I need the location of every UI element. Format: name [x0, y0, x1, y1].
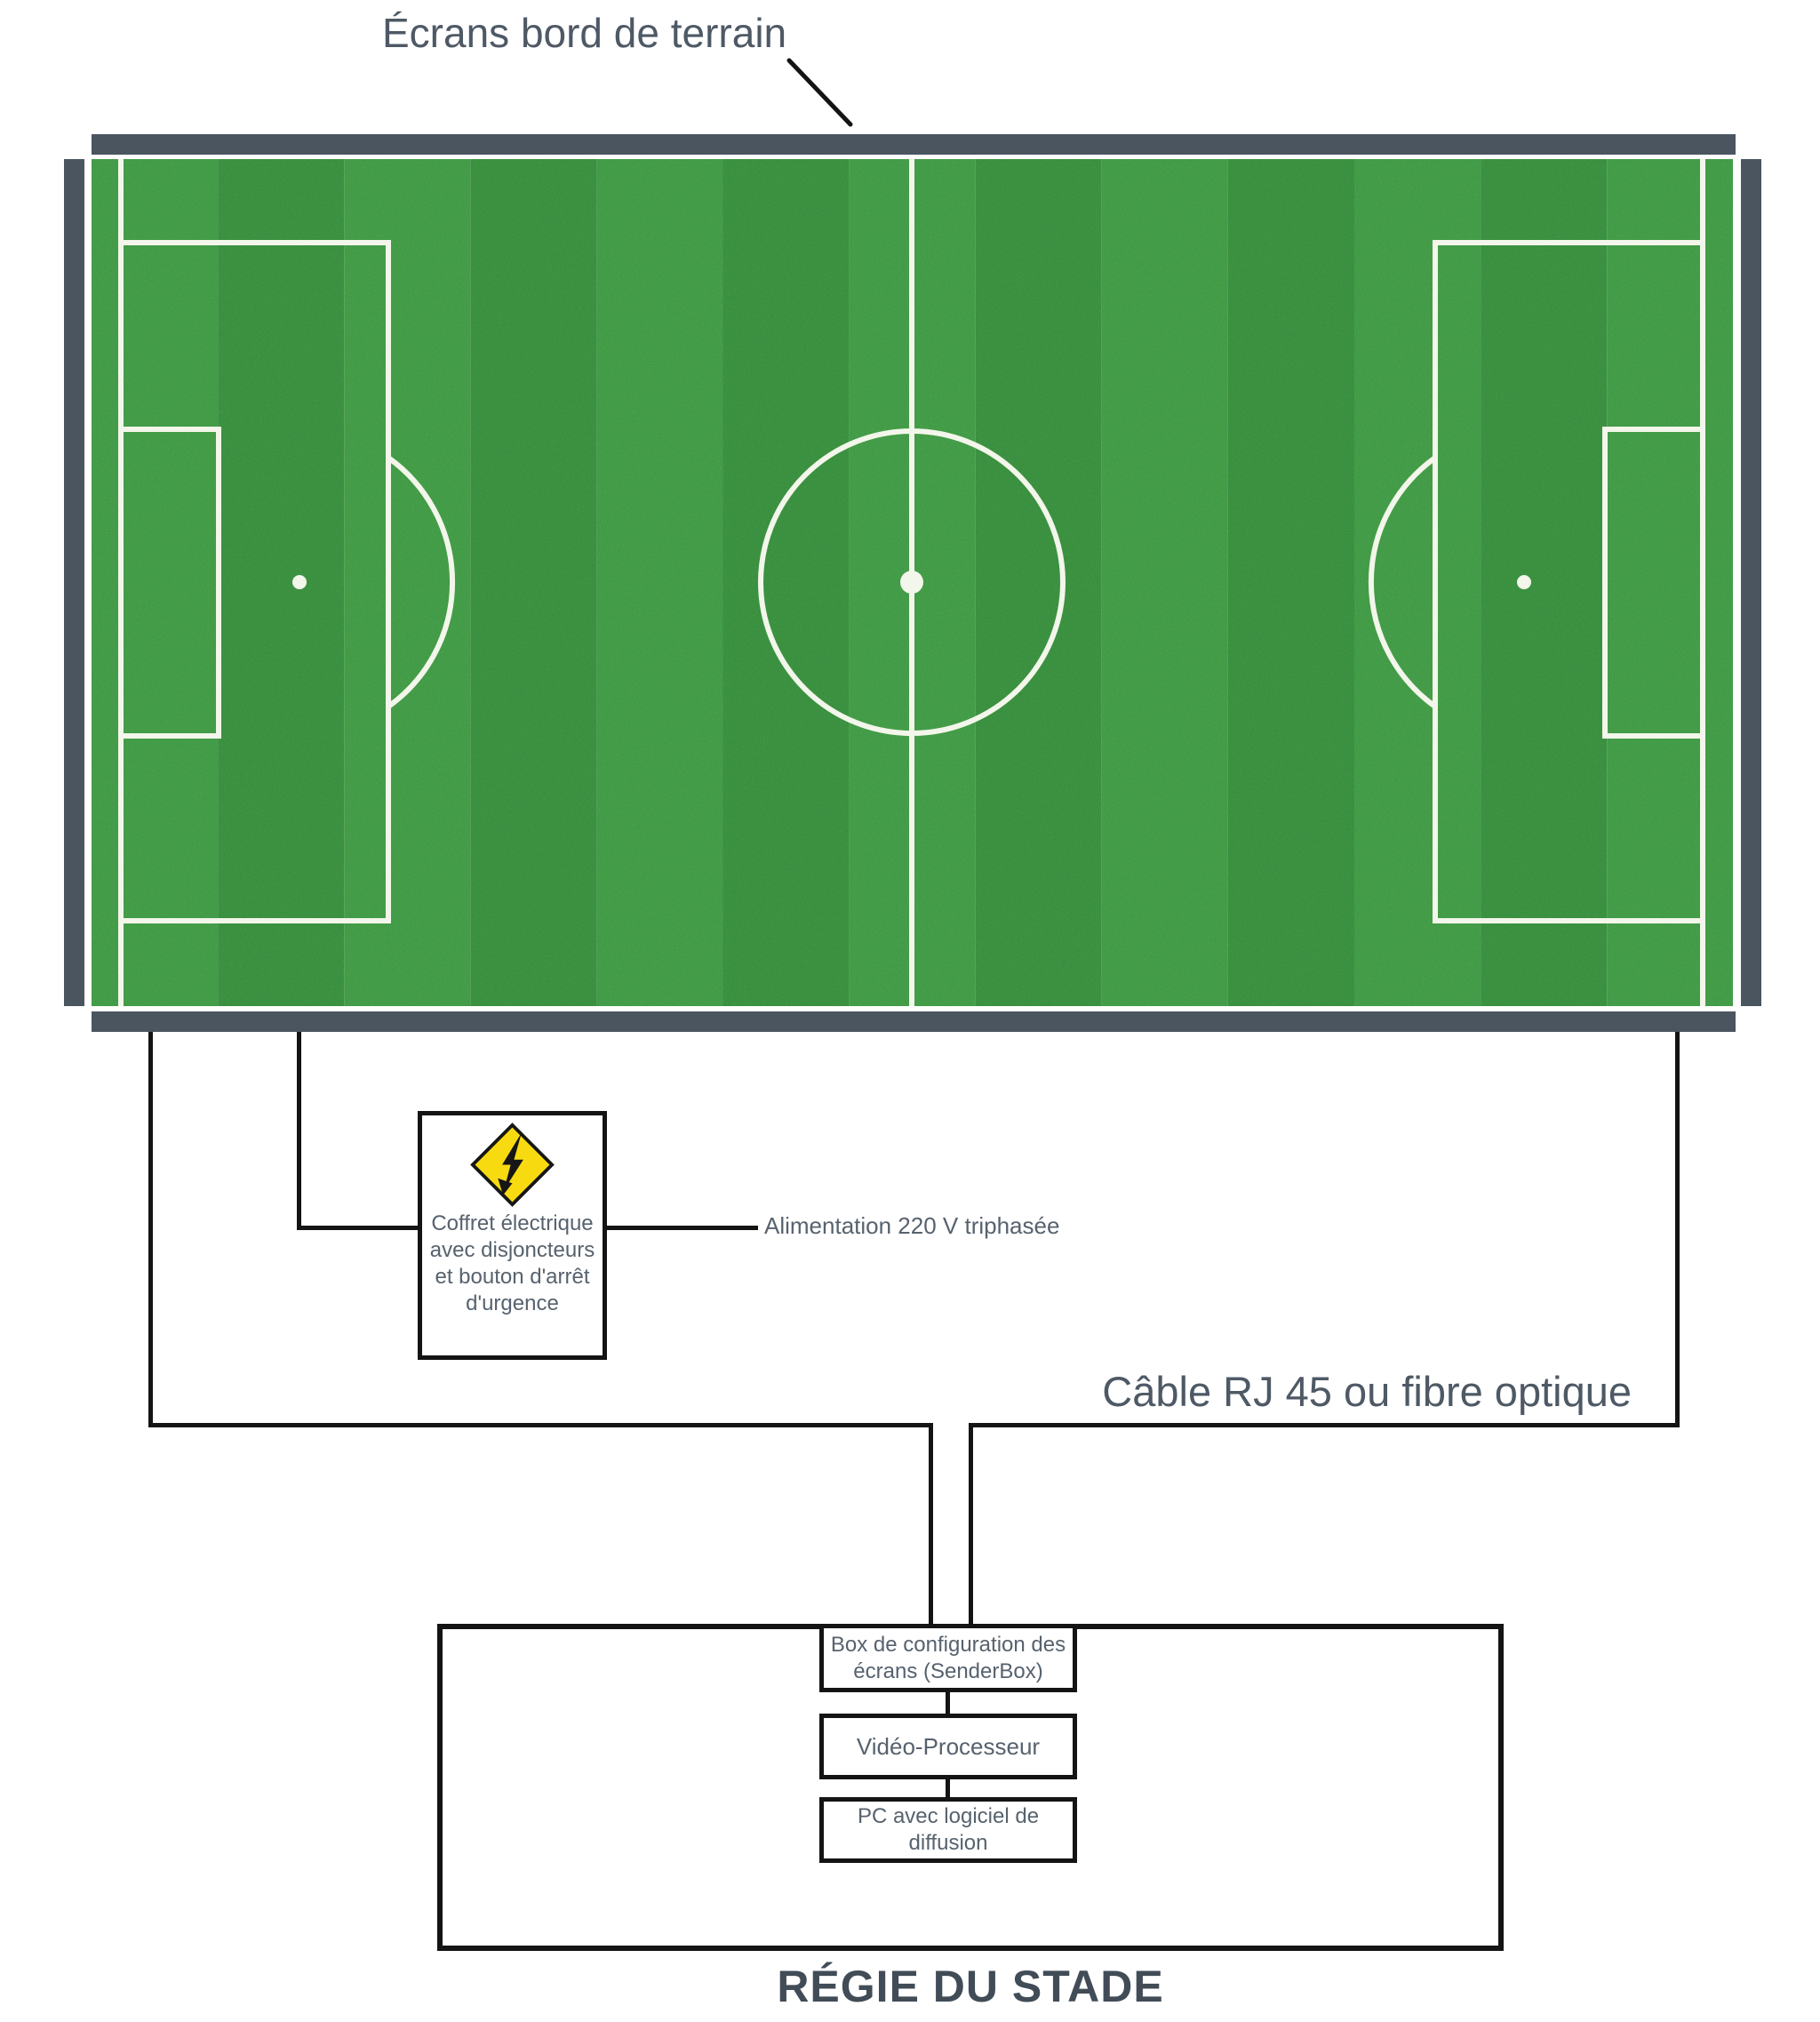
broadcast-pc-box: PC avec logiciel de diffusion	[819, 1797, 1077, 1863]
control-room-title: RÉGIE DU STADE	[437, 1961, 1504, 2012]
stadium-screens-diagram: Écrans bord de terrain	[0, 0, 1820, 2022]
connector-video-pc	[946, 1779, 950, 1797]
video-processor-label: Vidéo-Processeur	[857, 1732, 1040, 1762]
penalty-spot-right	[1517, 575, 1531, 589]
video-processor-box: Vidéo-Processeur	[819, 1714, 1077, 1779]
electrical-cabinet-caption: Coffret électrique avec disjoncteurs et …	[430, 1211, 595, 1317]
penalty-spot-left	[292, 575, 307, 589]
wire-electrical-box-to-power	[607, 1226, 758, 1230]
wire-right-screens-down	[1675, 1032, 1680, 1427]
electrical-cabinet-line4: d'urgence	[430, 1291, 595, 1317]
electrical-cabinet-line3: et bouton d'arrêt	[430, 1264, 595, 1291]
wire-cable-left-horizontal	[148, 1423, 933, 1427]
wire-screens-to-electrical-box-vertical	[297, 1032, 301, 1230]
wire-cable-right-horizontal	[969, 1423, 1680, 1427]
screen-bar-left	[64, 159, 84, 1006]
electrical-cabinet-line1: Coffret électrique	[430, 1211, 595, 1237]
broadcast-pc-line2: diffusion	[909, 1830, 988, 1857]
wire-left-screens-down	[148, 1032, 153, 1427]
wire-screens-to-electrical-box-horizontal	[297, 1226, 418, 1230]
screen-bar-top	[92, 134, 1736, 155]
senderbox-box: Box de configuration des écrans (SenderB…	[819, 1624, 1077, 1692]
power-supply-label: Alimentation 220 V triphasée	[764, 1212, 1059, 1240]
cable-type-label: Câble RJ 45 ou fibre optique	[1049, 1367, 1632, 1417]
connector-senderbox-video	[946, 1692, 950, 1714]
football-pitch-image	[92, 159, 1733, 1006]
broadcast-pc-line1: PC avec logiciel de	[858, 1803, 1039, 1830]
electrical-cabinet-box: Coffret électrique avec disjoncteurs et …	[418, 1111, 607, 1360]
pointer-line	[782, 55, 862, 135]
senderbox-line1: Box de configuration des	[831, 1632, 1066, 1658]
wire-cable-left-drop	[929, 1423, 933, 1624]
wire-cable-right-drop	[969, 1423, 973, 1624]
screen-bar-right	[1741, 159, 1761, 1006]
electrical-cabinet-line2: avec disjoncteurs	[430, 1237, 595, 1264]
pitchside-screens-label: Écrans bord de terrain	[382, 9, 786, 58]
screen-bar-bottom	[92, 1011, 1736, 1032]
high-voltage-warning-icon	[470, 1123, 555, 1207]
centre-spot	[900, 571, 923, 594]
senderbox-line2: écrans (SenderBox)	[853, 1658, 1042, 1685]
